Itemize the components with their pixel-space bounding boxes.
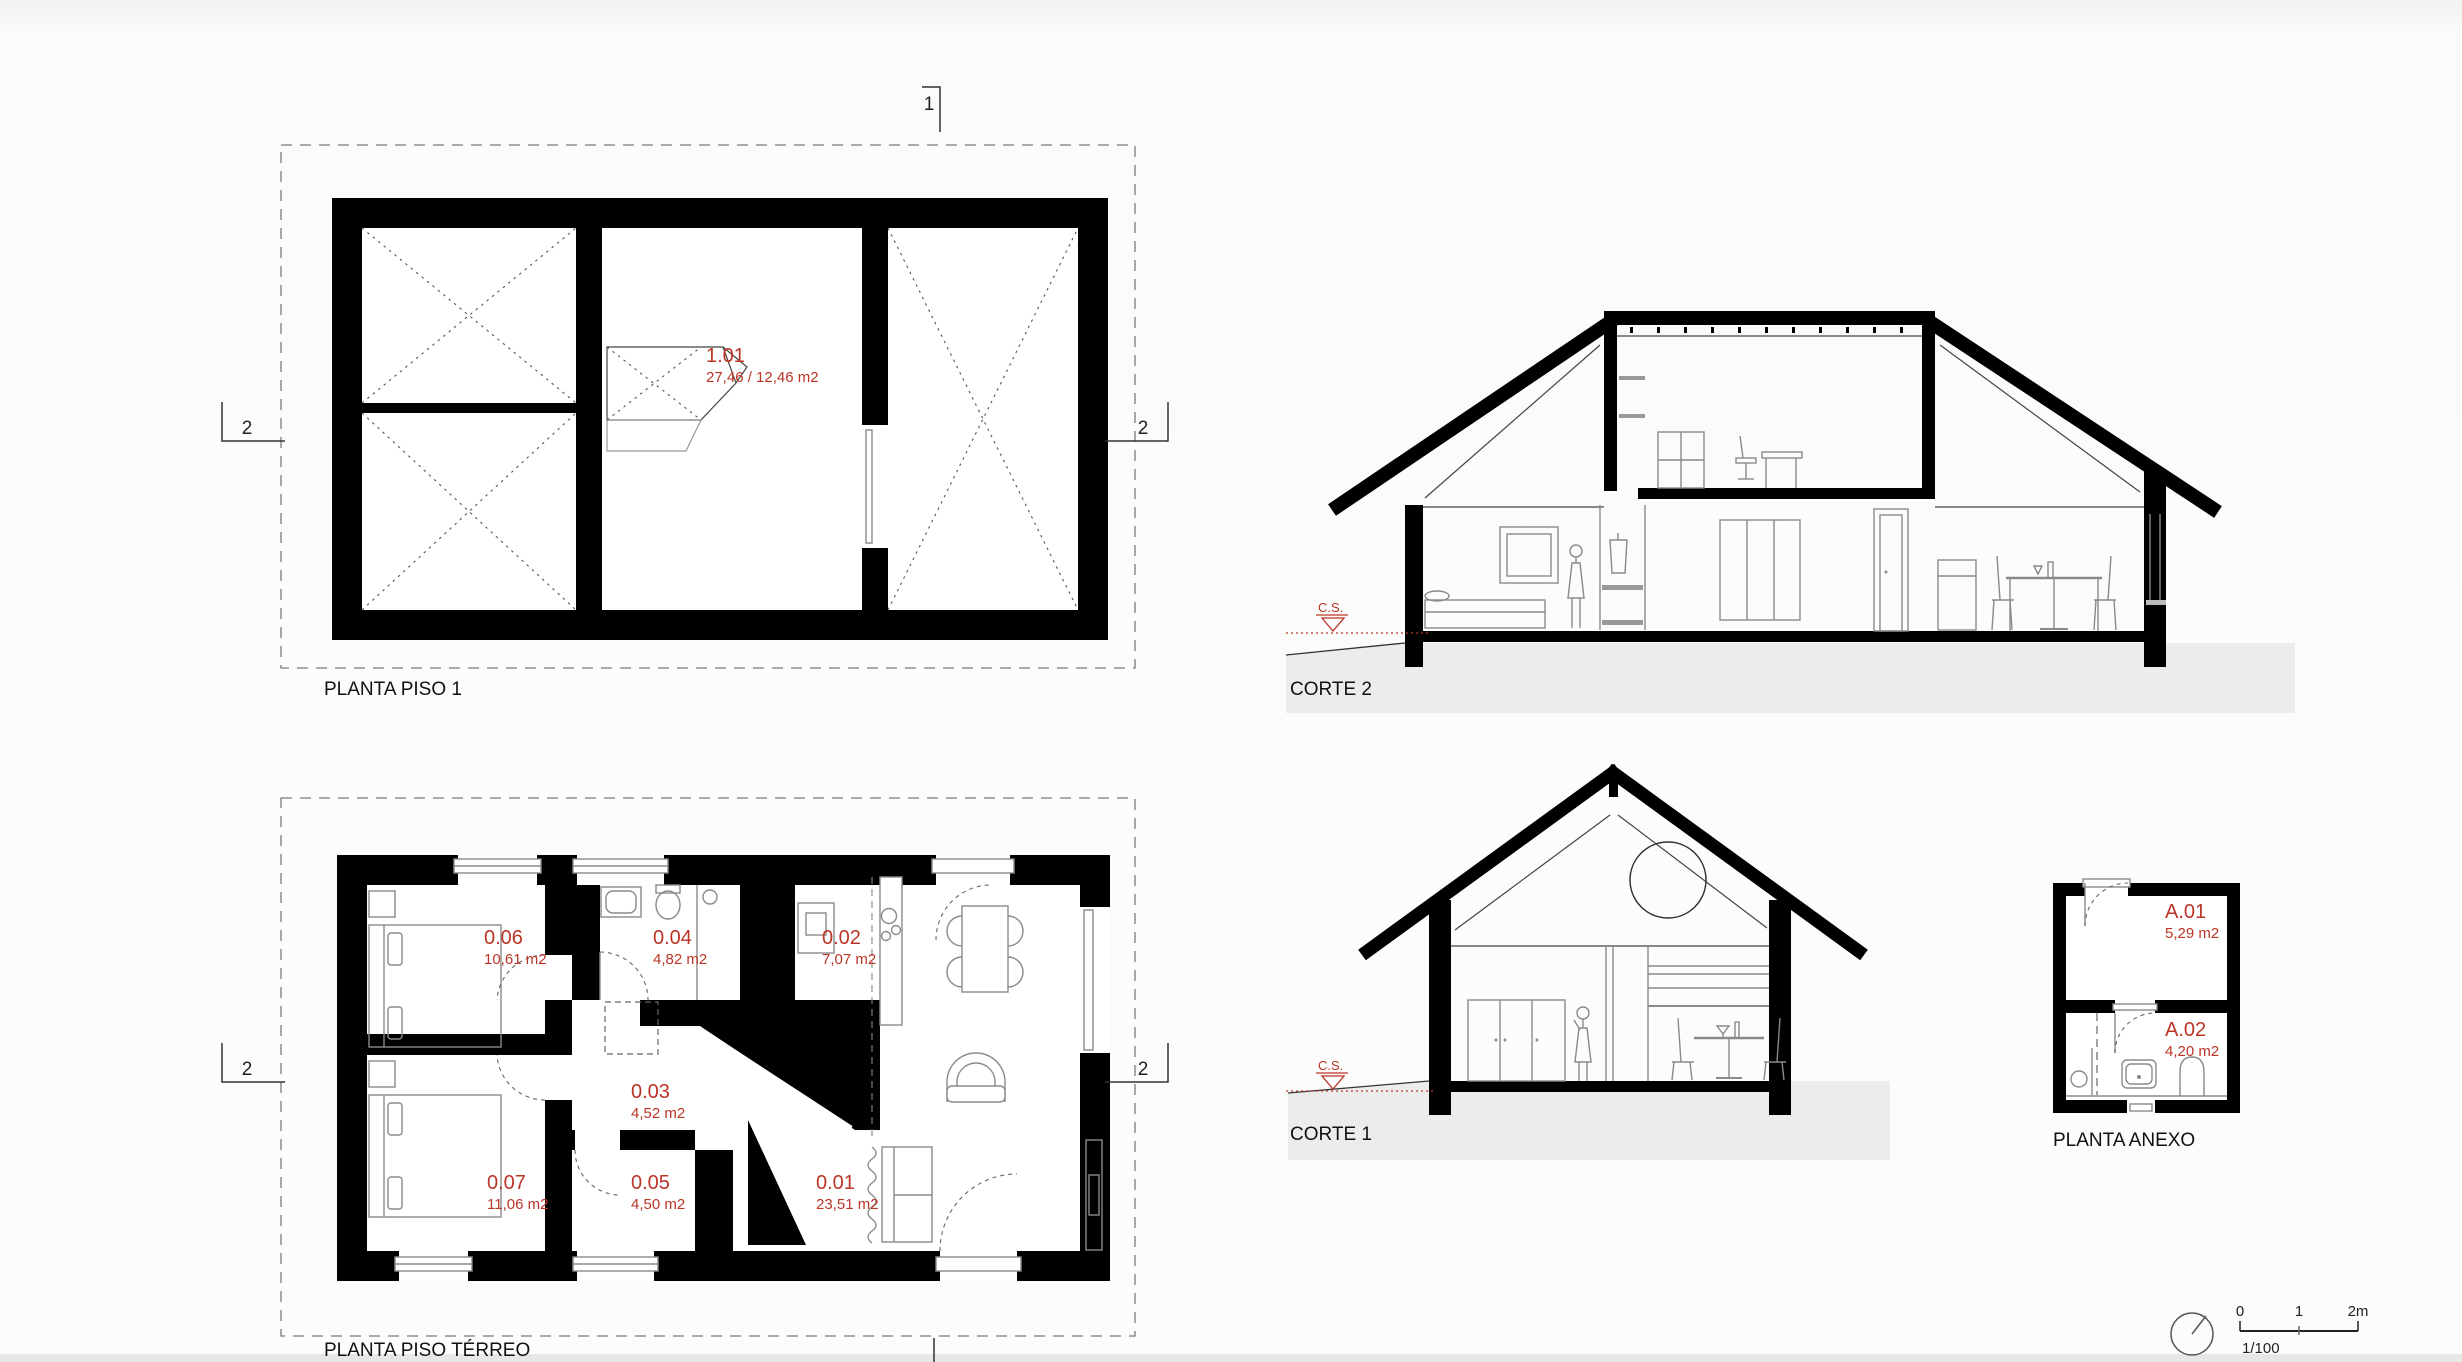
dining-section <box>1938 514 2166 631</box>
mezzanine-room <box>1604 318 1935 499</box>
desk <box>1762 452 1802 488</box>
svg-text:2: 2 <box>1138 418 1149 439</box>
wardrobe <box>1468 1000 1565 1081</box>
plan-terreo-title: PLANTA PISO TÉRREO <box>324 1340 530 1361</box>
section-marker-2-right: 2 <box>1105 1043 1168 1082</box>
dining-table <box>1672 1018 1786 1080</box>
person-figure <box>1574 1007 1591 1081</box>
scale-tick-0: 0 <box>2236 1303 2244 1320</box>
room-area-0-07: 11,06 m2 <box>487 1196 548 1213</box>
room-label-0-03: 0.03 <box>631 1081 670 1103</box>
drawing-sheet: 1.01 27,46 / 12,46 m2 1 2 2 PLANTA PISO … <box>0 0 2462 1362</box>
plan-anexo: A.01 5,29 m2 A.02 4,20 m2 PLANTA ANEXO <box>2053 879 2240 1151</box>
room-label-0-07: 0.07 <box>487 1172 526 1194</box>
scale-tick-2m: 2m <box>2348 1303 2369 1320</box>
section-marker-2-right: 2 <box>1105 402 1168 441</box>
corte1-title: CORTE 1 <box>1290 1124 1372 1145</box>
scale-ratio: 1/100 <box>2242 1340 2280 1357</box>
plan-terreo: 0.06 10,61 m2 0.04 4,82 m2 0.02 7,07 m2 … <box>222 798 1168 1362</box>
room-label-a02: A.02 <box>2165 1019 2206 1041</box>
room-area-0-04: 4,82 m2 <box>653 951 707 968</box>
room-label-0-05: 0.05 <box>631 1172 670 1194</box>
person-figure <box>1568 545 1584 628</box>
corte2-title: CORTE 2 <box>1290 679 1372 700</box>
roof-flat-top <box>1604 311 1935 325</box>
room-area-0-05: 4,50 m2 <box>631 1196 685 1213</box>
svg-text:2: 2 <box>1138 1059 1149 1080</box>
room-label-0-06: 0.06 <box>484 927 523 949</box>
roof-slope-right <box>1924 318 2218 512</box>
ground <box>1286 643 2295 713</box>
room-area-0-01: 23,51 m2 <box>816 1196 879 1213</box>
room-area-0-03: 4,52 m2 <box>631 1105 685 1122</box>
rafter-ticks <box>1630 327 1903 333</box>
svg-text:C.S.: C.S. <box>1318 600 1343 615</box>
ground <box>1288 1081 1890 1160</box>
room-area-0-06: 10,61 m2 <box>484 951 547 968</box>
room-label-1-01: 1.01 <box>706 345 745 367</box>
room-area-1-01: 27,46 / 12,46 m2 <box>706 369 819 386</box>
office-chair <box>1736 436 1756 479</box>
bedroom-section <box>1425 505 1645 630</box>
room-area-0-02: 7,07 m2 <box>822 951 876 968</box>
scale-bar: 0 1 2m 1/100 <box>2171 1303 2368 1357</box>
middle-section <box>1720 509 1908 631</box>
roof-slope-right <box>1608 769 1864 955</box>
scale-tick-1: 1 <box>2295 1303 2303 1320</box>
roof-slope-left <box>1362 769 1618 955</box>
svg-text:C.S.: C.S. <box>1318 1058 1343 1073</box>
plan-piso1-title: PLANTA PISO 1 <box>324 679 462 700</box>
kitchen-wall <box>1606 946 1769 1081</box>
plan-anexo-title: PLANTA ANEXO <box>2053 1130 2195 1151</box>
section-marker-2-left: 2 <box>222 1043 285 1082</box>
wardrobe-column <box>1600 505 1645 630</box>
room-area-a02: 4,20 m2 <box>2165 1043 2219 1060</box>
room-label-0-04: 0.04 <box>653 927 692 949</box>
roof-slope-left <box>1332 318 1616 510</box>
plan-piso1: 1.01 27,46 / 12,46 m2 1 2 2 PLANTA PISO … <box>222 87 1168 700</box>
room-label-0-02: 0.02 <box>822 927 861 949</box>
section-corte2: C.S. CORTE 2 <box>1286 311 2295 713</box>
section-marker-1-top: 1 <box>922 87 940 132</box>
section-corte1: C.S. CORTE 1 <box>1286 769 1890 1160</box>
room-label-a01: A.01 <box>2165 901 2206 923</box>
room-label-0-01: 0.01 <box>816 1172 855 1194</box>
svg-text:2: 2 <box>242 418 253 439</box>
door-leaf <box>866 430 872 543</box>
section-marker-2-left: 2 <box>222 402 285 441</box>
architectural-sheet: { "colors": { "label_red": "#bb3527", "w… <box>0 0 2462 1362</box>
svg-text:2: 2 <box>242 1059 253 1080</box>
svg-text:1: 1 <box>924 94 935 115</box>
room-area-a01: 5,29 m2 <box>2165 925 2219 942</box>
living-window-right <box>1080 907 1110 1053</box>
